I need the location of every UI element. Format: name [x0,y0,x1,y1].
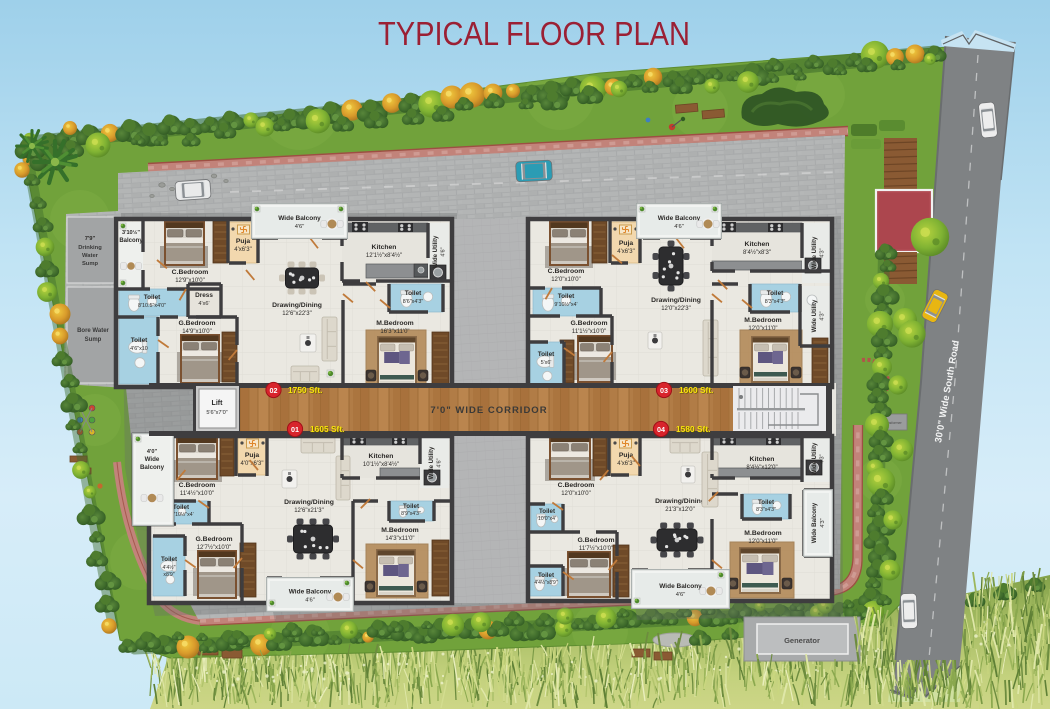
svg-text:Puja: Puja [236,238,251,245]
svg-text:Toilet: Toilet [767,290,784,297]
svg-text:Lift: Lift [212,400,224,407]
svg-text:Wide Balcony: Wide Balcony [811,502,818,543]
svg-text:Kitchen: Kitchen [750,456,775,463]
svg-text:4'4½"x8'9": 4'4½"x8'9" [534,579,557,586]
svg-text:12'1½"x8'4½": 12'1½"x8'4½" [366,252,402,259]
svg-text:4'6": 4'6" [676,592,686,598]
svg-text:4'6": 4'6" [437,458,443,467]
svg-text:C.Bedroom: C.Bedroom [172,269,209,276]
svg-text:Toilet: Toilet [131,337,148,344]
svg-text:4'6"x10: 4'6"x10 [130,346,148,352]
svg-text:11'4½"x10'0": 11'4½"x10'0" [180,490,214,497]
svg-text:C.Bedroom: C.Bedroom [179,482,216,489]
svg-text:Drinking: Drinking [78,245,102,251]
svg-text:8'3"x4'3": 8'3"x4'3" [756,507,776,513]
svg-text:4'3": 4'3" [820,454,826,463]
svg-text:8'6"x4'3": 8'6"x4'3" [403,299,424,305]
svg-text:8'4½"x12'0": 8'4½"x12'0" [746,464,777,471]
svg-text:12'0"x10'0": 12'0"x10'0" [561,491,591,497]
svg-text:Wide Utility: Wide Utility [812,236,818,269]
svg-text:4'x6'3": 4'x6'3" [617,249,634,255]
svg-text:12'7½"x10'0": 12'7½"x10'0" [197,544,232,551]
svg-text:8'3"x4'3": 8'3"x4'3" [765,299,786,305]
svg-text:14'3"x11'0": 14'3"x11'0" [385,536,414,542]
svg-text:16'3"x11'0": 16'3"x11'0" [380,329,409,335]
svg-text:Toilet: Toilet [403,503,419,510]
svg-text:4'6": 4'6" [674,224,684,230]
svg-text:Toilet: Toilet [173,504,189,511]
svg-text:Puja: Puja [245,452,260,459]
svg-text:8'9"x4'3": 8'9"x4'3" [401,511,421,517]
svg-text:Toilet: Toilet [539,508,555,515]
svg-text:Wide Utility: Wide Utility [812,299,818,332]
svg-text:Wide Balcony: Wide Balcony [659,583,702,590]
svg-text:7'9": 7'9" [85,236,96,242]
svg-text:Balcony: Balcony [140,464,165,471]
svg-text:M.Bedroom: M.Bedroom [376,320,413,327]
svg-text:M.Bedroom: M.Bedroom [381,527,418,534]
svg-text:4'6": 4'6" [305,598,315,604]
svg-text:Puja: Puja [619,240,634,247]
svg-text:Drawing/Dining: Drawing/Dining [651,297,701,304]
svg-text:11'7½"x10'0": 11'7½"x10'0" [579,545,613,552]
svg-text:Sump: Sump [82,261,99,267]
svg-text:Wide Balcony: Wide Balcony [658,215,701,222]
svg-text:4'0": 4'0" [147,449,158,455]
svg-text:Dress: Dress [195,292,213,299]
svg-text:4'4½": 4'4½" [163,564,176,571]
svg-text:TYPICAL FLOOR PLAN: TYPICAL FLOOR PLAN [378,15,690,52]
svg-text:Toilet: Toilet [538,572,554,579]
svg-text:Kitchen: Kitchen [372,244,397,251]
svg-text:M.Bedroom: M.Bedroom [744,317,781,324]
svg-text:Drawing/Dining: Drawing/Dining [272,302,322,309]
svg-text:12'0"x11'0": 12'0"x11'0" [748,539,777,545]
svg-text:4'6": 4'6" [441,247,447,256]
svg-text:Wide Utility: Wide Utility [812,442,818,475]
svg-text:Drawing/Dining: Drawing/Dining [284,499,334,506]
svg-text:1580 Sft.: 1580 Sft. [676,424,710,434]
svg-text:Toilet: Toilet [558,293,575,300]
svg-text:4'3": 4'3" [820,518,826,527]
svg-text:Toilet: Toilet [144,294,161,301]
svg-text:G.Bedroom: G.Bedroom [178,320,215,327]
svg-text:G.Bedroom: G.Bedroom [195,536,232,543]
svg-text:1750 Sft.: 1750 Sft. [288,385,322,395]
svg-text:Water: Water [82,253,99,259]
svg-text:Drawing/Dining: Drawing/Dining [655,498,705,505]
svg-text:Toilet: Toilet [405,290,422,297]
svg-text:Kitchen: Kitchen [369,453,394,460]
svg-text:7'0" WIDE CORRIDOR: 7'0" WIDE CORRIDOR [430,405,547,416]
svg-text:02: 02 [270,386,278,395]
svg-text:x8'9": x8'9" [163,572,174,578]
svg-text:Wide Balcony: Wide Balcony [289,589,332,596]
svg-text:10'1½"x8'4½": 10'1½"x8'4½" [363,461,399,468]
svg-text:21'3"x12'0": 21'3"x12'0" [665,507,695,513]
svg-text:Balcony: Balcony [119,238,143,244]
svg-text:Wide Utility: Wide Utility [433,235,439,268]
svg-text:04: 04 [657,425,665,434]
svg-text:Bore Water: Bore Water [77,328,109,334]
svg-text:8'4½"x8'3": 8'4½"x8'3" [743,249,771,256]
svg-text:4'3": 4'3" [820,311,826,320]
svg-text:12'6"x21'3": 12'6"x21'3" [294,508,324,514]
svg-text:11'1½"x10'0": 11'1½"x10'0" [572,328,606,335]
svg-text:1605 Sft.: 1605 Sft. [310,424,344,434]
svg-text:Kitchen: Kitchen [745,241,770,248]
svg-text:Sump: Sump [85,337,102,343]
svg-text:12'0"x11'0": 12'0"x11'0" [748,326,777,332]
svg-text:M.Bedroom: M.Bedroom [744,530,781,537]
svg-text:5'6"x7'0": 5'6"x7'0" [206,410,227,416]
svg-text:1600 Sft.: 1600 Sft. [679,385,713,395]
svg-text:Generator: Generator [784,636,820,645]
svg-text:3'10½": 3'10½" [122,229,140,236]
svg-text:Wide Utility: Wide Utility [429,446,435,479]
svg-text:01: 01 [291,425,299,434]
svg-text:Puja: Puja [619,452,634,459]
svg-text:G.Bedroom: G.Bedroom [577,537,614,544]
svg-text:C.Bedroom: C.Bedroom [548,268,585,275]
svg-text:Wide: Wide [145,456,160,463]
svg-text:12'0"x22'3": 12'0"x22'3" [661,306,691,312]
svg-text:12'0"x10'0": 12'0"x10'0" [551,277,581,283]
svg-text:Toilet: Toilet [161,556,177,563]
svg-text:9'10½"x4': 9'10½"x4' [554,301,577,308]
svg-text:C.Bedroom: C.Bedroom [558,482,595,489]
svg-text:5'x6': 5'x6' [541,360,552,366]
svg-text:4'3": 4'3" [820,248,826,257]
svg-text:4'6": 4'6" [295,224,305,230]
svg-text:Toilet: Toilet [538,351,555,358]
svg-text:10'0"x4': 10'0"x4' [538,516,556,522]
svg-text:03: 03 [660,386,668,395]
svg-text:8'10.5"x4'0": 8'10.5"x4'0" [138,303,166,309]
svg-text:4'x6'3": 4'x6'3" [234,247,251,253]
svg-text:Wide Balcony: Wide Balcony [278,215,321,222]
svg-text:12'6"x22'3": 12'6"x22'3" [282,311,312,317]
svg-text:4'x6'3": 4'x6'3" [617,461,634,467]
svg-text:Toilet: Toilet [758,499,774,506]
svg-text:G.Bedroom: G.Bedroom [570,320,607,327]
svg-text:4'x6': 4'x6' [198,301,209,307]
